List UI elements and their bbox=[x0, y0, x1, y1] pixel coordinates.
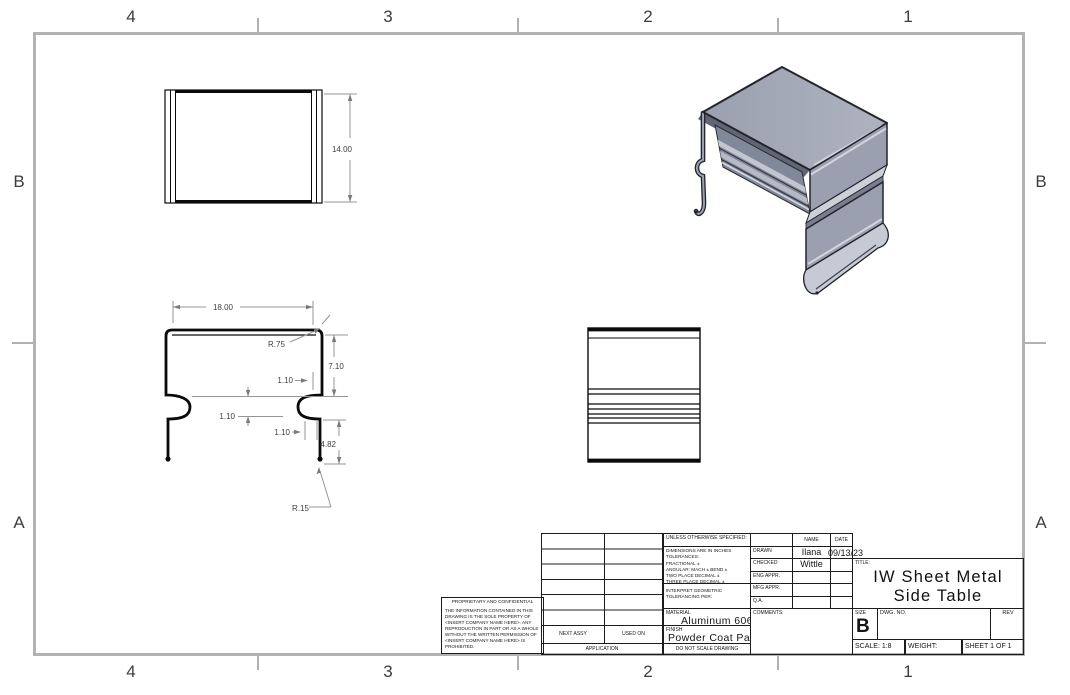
drawing-sheet: 4 3 2 1 4 3 2 1 B A B A 14.00 bbox=[0, 0, 1070, 695]
title-label: TITLE: bbox=[853, 559, 1023, 566]
date-header: DATE bbox=[830, 533, 853, 547]
drawing-title-line1: IW Sheet Metal bbox=[853, 568, 1023, 586]
part-left-wall-edge bbox=[694, 113, 704, 214]
checked-name-text: Wittle bbox=[800, 559, 823, 570]
interpret-line1: INTERPRET GEOMETRIC bbox=[666, 585, 750, 594]
zone-label-top-3: 3 bbox=[368, 6, 408, 28]
hem-dot-left bbox=[165, 456, 170, 461]
dim-offset-a: 1.10 bbox=[277, 376, 293, 385]
used-on-cell: USED ON bbox=[604, 625, 663, 644]
application-cell: APPLICATION bbox=[541, 643, 663, 655]
dim-section-width: 18.00 bbox=[213, 303, 234, 312]
dim-offset-b: 1.10 bbox=[219, 412, 235, 421]
interpret-line2: TOLERANCING PER: bbox=[666, 594, 750, 600]
front-view-outline bbox=[165, 90, 322, 203]
zone-tick bbox=[12, 342, 33, 344]
revision-grid bbox=[541, 533, 663, 626]
comments-label: COMMENTS: bbox=[751, 609, 852, 616]
interpret-cell: INTERPRET GEOMETRIC TOLERANCING PER: bbox=[663, 583, 751, 609]
do-not-scale-cell: DO NOT SCALE DRAWING bbox=[663, 643, 751, 655]
zone-tick bbox=[517, 18, 519, 32]
zone-label-right-A: A bbox=[1030, 512, 1052, 534]
zone-tick bbox=[257, 18, 259, 32]
proprietary-title: PROPRIETARY AND CONFIDENTIAL bbox=[445, 600, 540, 606]
scale-cell: SCALE: 1:8 bbox=[852, 639, 905, 655]
proprietary-note: PROPRIETARY AND CONFIDENTIAL THE INFORMA… bbox=[441, 597, 544, 654]
material-cell: MATERIAL Aluminum 6061 bbox=[663, 608, 751, 626]
zone-label-top-1: 1 bbox=[888, 6, 928, 28]
name-cell-empty bbox=[792, 583, 831, 597]
zone-label-bottom-3: 3 bbox=[368, 661, 408, 683]
proprietary-body: THE INFORMATION CONTAINED IN THIS DRAWIN… bbox=[445, 608, 540, 650]
border-left bbox=[33, 32, 36, 656]
weight-cell: WEIGHT: bbox=[905, 639, 962, 655]
zone-label-bottom-1: 1 bbox=[888, 661, 928, 683]
size-value: B bbox=[853, 615, 877, 639]
next-assy-cell: NEXT ASSY bbox=[541, 625, 605, 644]
title-cell: TITLE: IW Sheet Metal Side Table bbox=[852, 558, 1024, 609]
zone-label-right-B: B bbox=[1030, 171, 1052, 193]
sheet-text: SHEET 1 OF 1 bbox=[963, 640, 1023, 652]
zone-tick bbox=[517, 656, 519, 670]
dwg-no-label: DWG. NO. bbox=[878, 609, 990, 617]
zone-label-left-A: A bbox=[8, 512, 30, 534]
tolerances-cell: DIMENSIONS ARE IN INCHES TOLERANCES: FRA… bbox=[663, 546, 751, 584]
isometric-view bbox=[690, 55, 905, 295]
scale-text: SCALE: 1:8 bbox=[853, 640, 904, 652]
comments-cell: COMMENTS: bbox=[750, 608, 853, 655]
zone-tick bbox=[777, 18, 779, 32]
row-label-checked: CHECKED bbox=[750, 558, 793, 572]
rev-cell: REV bbox=[990, 608, 1024, 640]
dim-front-height: 14.00 bbox=[332, 145, 353, 154]
hem-dot-right bbox=[317, 456, 322, 461]
zone-label-left-B: B bbox=[8, 171, 30, 193]
front-view: 14.00 bbox=[150, 80, 365, 215]
dim-top-radius: R.75 bbox=[268, 340, 285, 349]
border-top bbox=[33, 32, 1025, 35]
weight-label: WEIGHT: bbox=[906, 640, 961, 652]
checked-name: Wittle bbox=[792, 558, 831, 572]
zone-tick bbox=[777, 656, 779, 670]
unless-otherwise-text: UNLESS OTHERWISE SPECIFIED: bbox=[664, 534, 750, 541]
zone-label-bottom-4: 4 bbox=[111, 661, 151, 683]
rev-label: REV bbox=[991, 609, 1023, 617]
zone-label-top-4: 4 bbox=[111, 6, 151, 28]
zone-label-bottom-2: 2 bbox=[628, 661, 668, 683]
dwg-no-cell: DWG. NO. bbox=[877, 608, 991, 640]
drawing-title-line2: Side Table bbox=[853, 587, 1023, 605]
unless-otherwise-cell: UNLESS OTHERWISE SPECIFIED: bbox=[663, 533, 751, 547]
name-header: NAME bbox=[792, 533, 831, 547]
size-cell: SIZE B bbox=[852, 608, 878, 640]
drawn-name-text: Ilana bbox=[802, 547, 822, 558]
dim-offset-c: 1.10 bbox=[274, 428, 290, 437]
sheet-cell: SHEET 1 OF 1 bbox=[962, 639, 1024, 655]
section-view: 18.00 R.75 7.10 1.10 1.10 1.10 bbox=[150, 295, 365, 520]
finish-cell: FINISH Powder Coat Paint bbox=[663, 625, 751, 644]
side-view bbox=[580, 320, 710, 470]
dim-bottom-radius: R.15 bbox=[292, 504, 309, 513]
zone-tick bbox=[257, 656, 259, 670]
row-label-mfg-appr: MFG APPR. bbox=[750, 583, 793, 597]
title-block: NEXT ASSY USED ON APPLICATION UNLESS OTH… bbox=[541, 533, 1024, 655]
date-cell-empty bbox=[830, 583, 853, 597]
approvals-header-spacer bbox=[750, 533, 793, 547]
section-profile-outline bbox=[166, 330, 322, 459]
dim-lower-height: 4.82 bbox=[320, 440, 336, 449]
date-cell-empty bbox=[830, 558, 853, 572]
side-view-outline bbox=[588, 328, 700, 462]
zone-label-top-2: 2 bbox=[628, 6, 668, 28]
zone-tick bbox=[1025, 342, 1046, 344]
dim-upper-height: 7.10 bbox=[328, 362, 344, 371]
